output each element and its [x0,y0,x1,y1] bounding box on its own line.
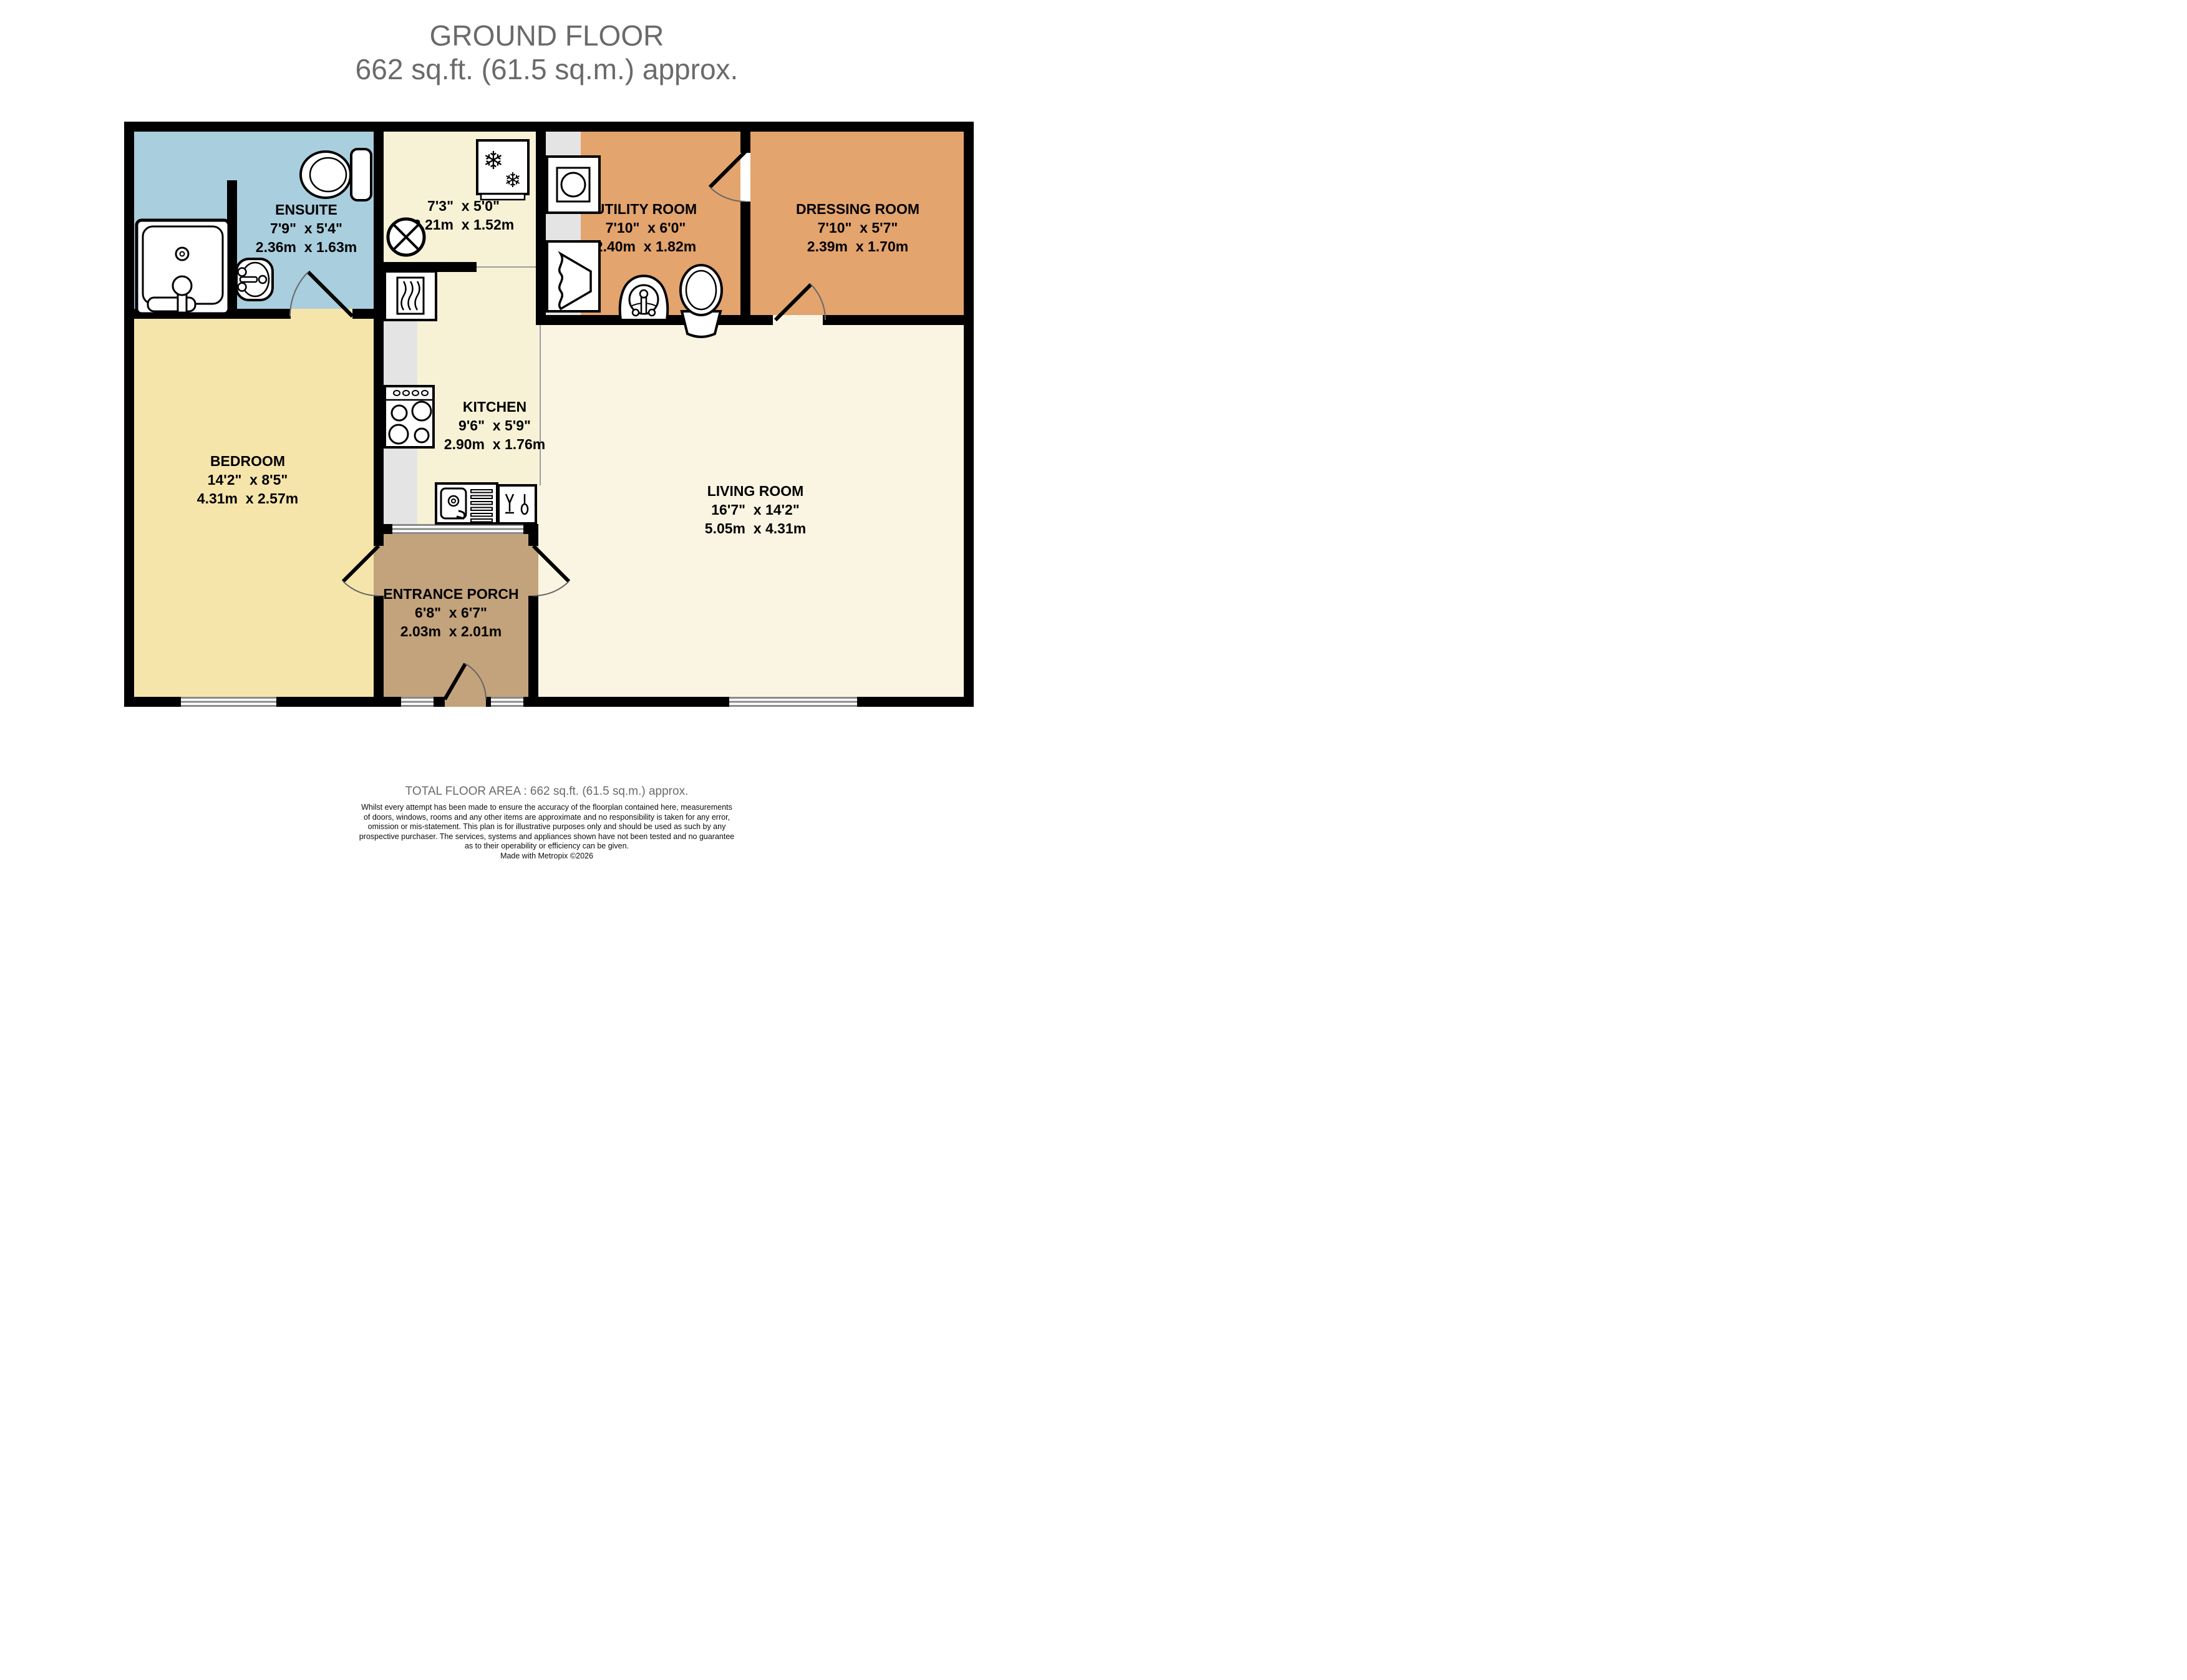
wall-segment [538,697,729,707]
living-room-window [729,697,857,707]
room-name: DRESSING ROOM [796,200,919,218]
wall-segment [227,180,237,319]
wall-segment [536,315,773,325]
label-hallway: 7'3" x 5'0" 2.21m x 1.52m [413,197,514,234]
wall-segment [374,534,384,546]
porch-internal-window [392,524,523,534]
wall-segment [740,132,750,153]
wall-segment [964,122,974,707]
bedroom-window [181,697,276,707]
wall-segment [124,122,974,132]
wall-segment [134,309,291,319]
wall-segment [124,122,134,707]
disclaimer-line: Whilst every attempt has been made to en… [0,803,1093,813]
room-dim-imperial: 16'7" x 14'2" [705,500,806,519]
page-title: GROUND FLOOR [0,19,1093,52]
room-dim-metric: 4.31m x 2.57m [197,489,298,508]
room-name: ENTRANCE PORCH [383,585,518,603]
room-dim-imperial: 9'6" x 5'9" [444,416,545,435]
floor-plan: ENSUITE 7'9" x 5'4" 2.36m x 1.63m 7'3" x… [124,122,974,707]
room-dim-metric: 2.03m x 2.01m [383,622,518,641]
label-utility: UTILITY ROOM 7'10" x 6'0" 2.40m x 1.82m [594,200,697,256]
room-dim-imperial: 7'9" x 5'4" [256,219,357,238]
porch-window-right [491,697,523,707]
disclaimer-line: as to their operability or efficiency ca… [0,842,1093,852]
room-dim-imperial: 14'2" x 8'5" [197,470,298,489]
wall-segment [276,697,384,707]
floorplan-page: { "title": { "line1": "GROUND FLOOR", "l… [0,0,1093,840]
room-dim-metric: 2.21m x 1.52m [413,215,514,234]
wall-segment [523,697,538,707]
label-porch: ENTRANCE PORCH 6'8" x 6'7" 2.03m x 2.01m [383,585,518,641]
room-name: ENSUITE [256,200,357,219]
utility-counter [546,132,581,315]
room-dim-metric: 2.39m x 1.70m [796,237,919,256]
wall-segment [486,697,491,707]
label-dressing: DRESSING ROOM 7'10" x 5'7" 2.39m x 1.70m [796,200,919,256]
metropix-credit: Made with Metropix ©2026 [0,852,1093,862]
label-ensuite: ENSUITE 7'9" x 5'4" 2.36m x 1.63m [256,200,357,256]
wall-segment [374,596,384,697]
room-dim-metric: 5.05m x 4.31m [705,519,806,538]
porch-window-left [401,697,434,707]
wall-segment [352,309,384,319]
disclaimer-line: omission or mis-statement. This plan is … [0,822,1093,832]
room-name: UTILITY ROOM [594,200,697,218]
wall-segment [528,534,538,546]
room-dim-imperial: 6'8" x 6'7" [383,603,518,622]
wall-segment [857,697,974,707]
kitchen-counter [384,272,417,524]
room-dim-imperial: 7'10" x 6'0" [594,218,697,237]
room-name: BEDROOM [197,452,298,470]
room-name: LIVING ROOM [705,482,806,500]
wall-segment [374,262,477,272]
wall-segment [740,202,750,325]
wall-segment [374,122,384,524]
disclaimer-line: prospective purchaser. The services, sys… [0,832,1093,842]
page-subtitle: 662 sq.ft. (61.5 sq.m.) approx. [0,52,1093,86]
room-dim-metric: 2.36m x 1.63m [256,238,357,256]
room-dim-imperial: 7'3" x 5'0" [413,197,514,215]
hall-kitchen-boundary-line [477,266,536,268]
total-floor-area: TOTAL FLOOR AREA : 662 sq.ft. (61.5 sq.m… [0,785,1093,799]
label-bedroom: BEDROOM 14'2" x 8'5" 4.31m x 2.57m [197,452,298,508]
wall-segment [384,697,401,707]
wall-segment [374,524,392,534]
room-dim-metric: 2.90m x 1.76m [444,435,545,454]
wall-segment [124,697,181,707]
wall-segment [528,596,538,697]
label-living: LIVING ROOM 16'7" x 14'2" 5.05m x 4.31m [705,482,806,538]
wall-segment [823,315,974,325]
disclaimer-line: of doors, windows, rooms and any other i… [0,813,1093,823]
room-name: KITCHEN [444,397,545,416]
room-dim-imperial: 7'10" x 5'7" [796,218,919,237]
label-kitchen: KITCHEN 9'6" x 5'9" 2.90m x 1.76m [444,397,545,454]
room-dim-metric: 2.40m x 1.82m [594,237,697,256]
wall-segment [536,122,546,325]
wall-segment [434,697,445,707]
wall-segment [523,524,538,534]
